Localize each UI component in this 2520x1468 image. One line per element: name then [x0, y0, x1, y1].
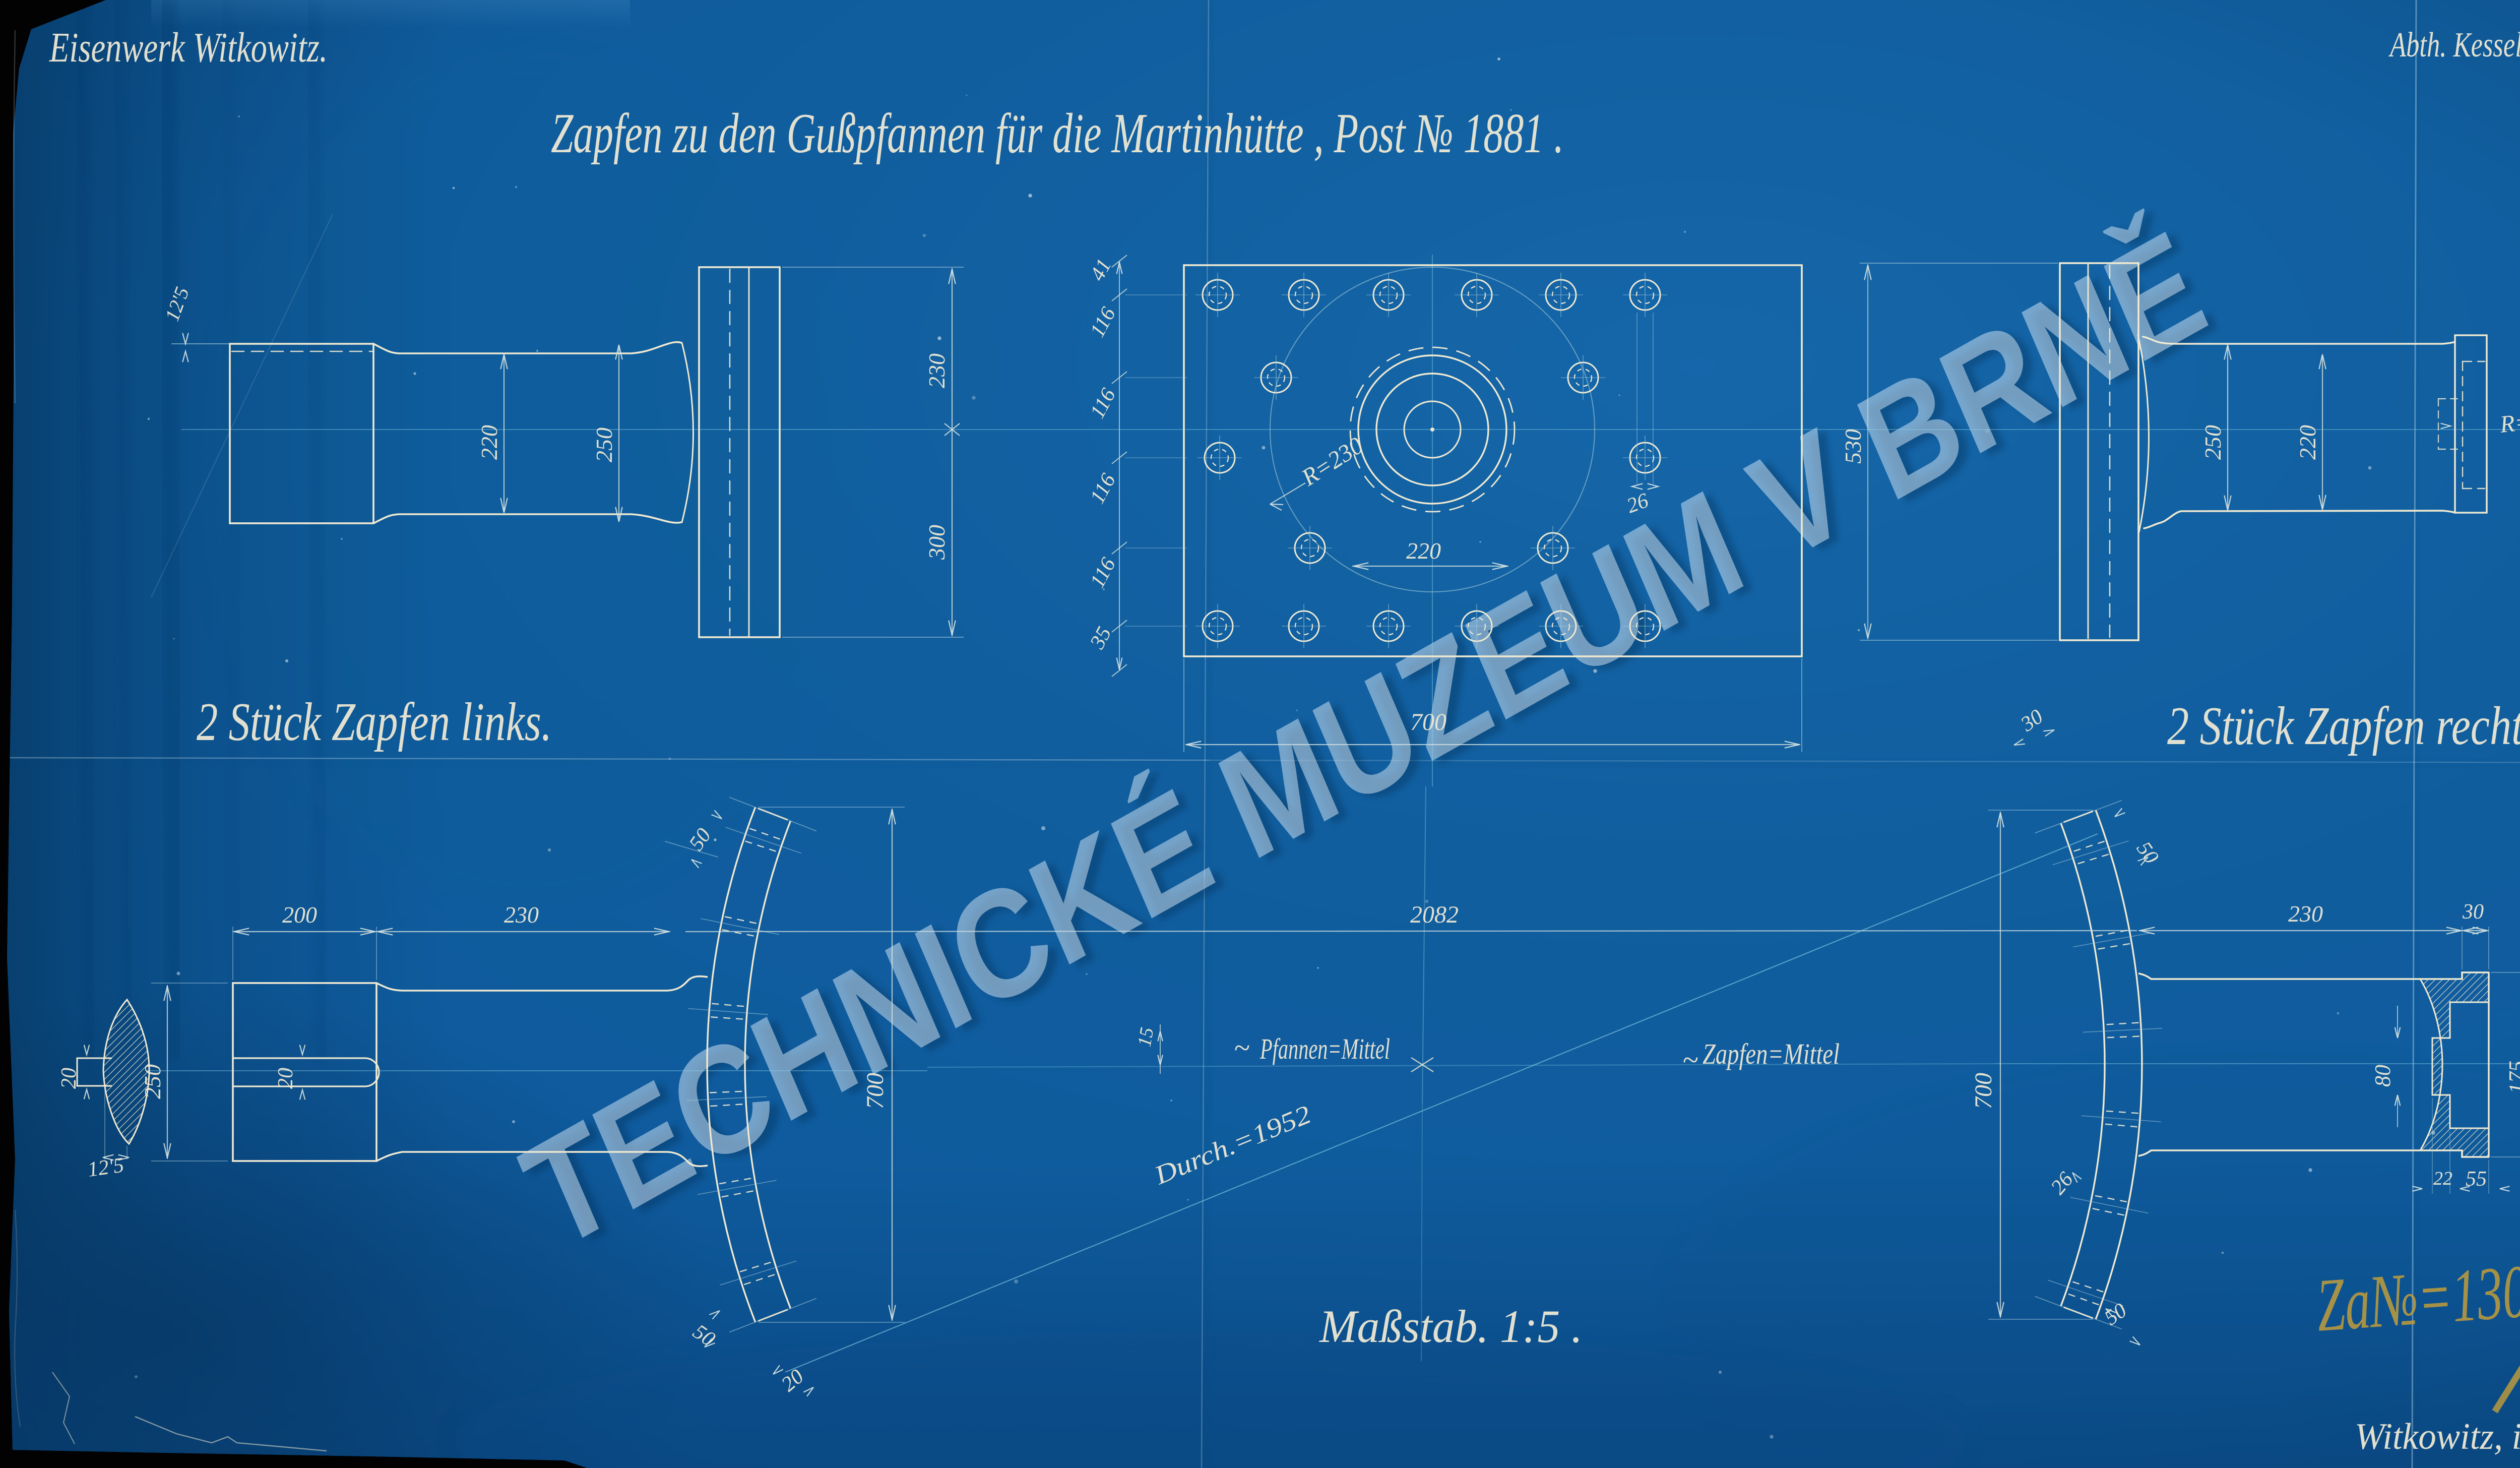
svg-text:2082: 2082	[1410, 901, 1459, 928]
svg-text:Zapfen=Mittel: Zapfen=Mittel	[1703, 1037, 1840, 1070]
svg-text:700: 700	[1410, 709, 1446, 736]
svg-text:220: 220	[2295, 425, 2320, 460]
svg-text:Maßstab. 1:5 .: Maßstab. 1:5 .	[1318, 1301, 1583, 1352]
svg-text:230: 230	[504, 902, 539, 928]
svg-text:250: 250	[140, 1064, 165, 1099]
svg-text:15: 15	[1134, 1026, 1158, 1049]
svg-text:80: 80	[2370, 1065, 2395, 1087]
svg-text:Abth. Kesselfabrik ~: Abth. Kesselfabrik ~	[2388, 26, 2520, 65]
svg-text:200: 200	[282, 902, 317, 928]
svg-text:20: 20	[274, 1068, 297, 1089]
svg-text:~: ~	[1234, 1031, 1249, 1064]
svg-text:Witkowitz, im Juli 1896 -: Witkowitz, im Juli 1896 -	[2355, 1416, 2520, 1457]
svg-text:Zapfen zu den Gußpfannen für d: Zapfen zu den Gußpfannen für die Martinh…	[551, 102, 1564, 165]
svg-text:~: ~	[1682, 1044, 1698, 1076]
svg-text:530: 530	[1840, 429, 1866, 464]
svg-text:220: 220	[1406, 538, 1441, 564]
svg-text:250: 250	[591, 427, 617, 462]
svg-text:30: 30	[2462, 900, 2484, 924]
svg-text:20: 20	[57, 1068, 81, 1089]
svg-text:250: 250	[2200, 425, 2226, 460]
svg-text:230: 230	[924, 353, 950, 388]
svg-text:Za№=1306: Za№=1306	[2314, 1248, 2520, 1348]
svg-text:22: 22	[2433, 1168, 2452, 1189]
svg-text:230: 230	[2288, 901, 2323, 927]
svg-text:Eisenwerk Witkowitz.: Eisenwerk Witkowitz.	[49, 24, 328, 71]
svg-text:2 Stück Zapfen rechts.: 2 Stück Zapfen rechts.	[2167, 696, 2520, 756]
svg-text:Pfannen=Mittel: Pfannen=Mittel	[1259, 1032, 1390, 1065]
svg-text:55: 55	[2466, 1168, 2487, 1191]
svg-text:700: 700	[1970, 1073, 1997, 1109]
svg-text:175: 175	[2504, 1061, 2520, 1094]
svg-text:2 Stück Zapfen links.: 2 Stück Zapfen links.	[197, 692, 552, 752]
svg-text:220: 220	[476, 425, 502, 460]
svg-text:300: 300	[924, 525, 950, 560]
svg-text:700: 700	[862, 1073, 889, 1109]
